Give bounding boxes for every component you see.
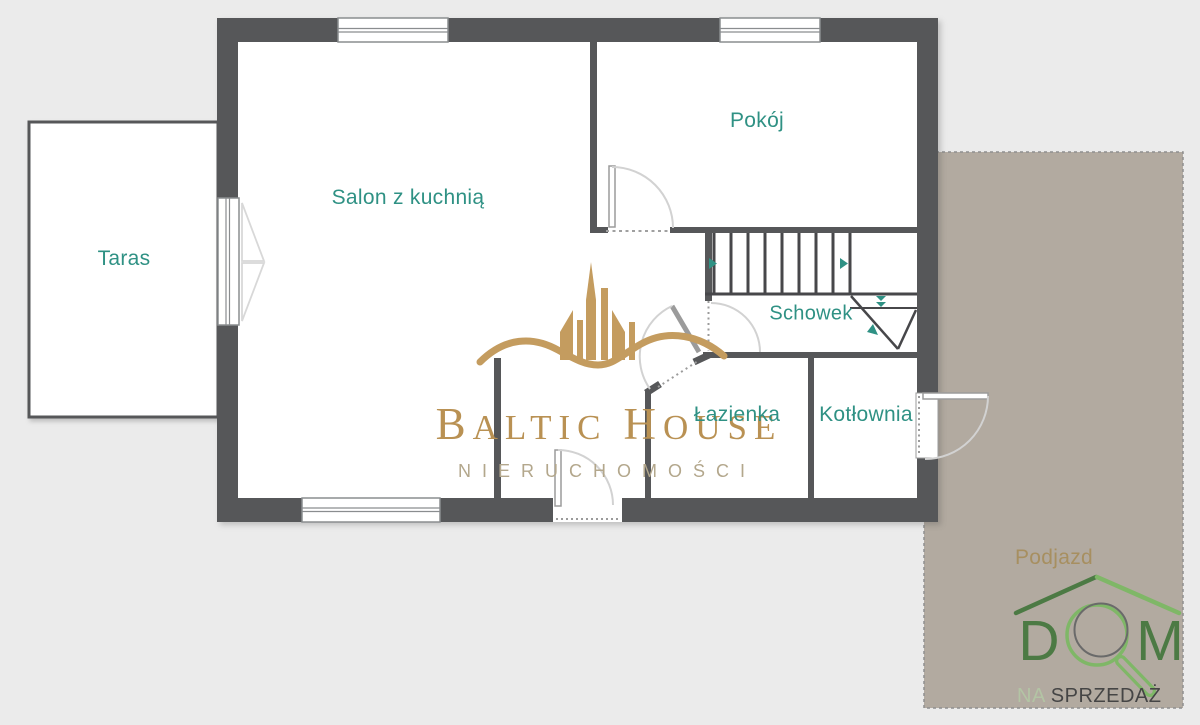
watermark-word1-rest: ALTIC (473, 408, 608, 447)
floor-plan-page: BALTICHOUSE NIERUCHOMOŚCI Taras Salon z … (0, 0, 1200, 725)
logo-letter-m: M (1136, 608, 1183, 674)
room-label-kotlownia: Kotłownia (819, 403, 913, 427)
watermark-word2-initial: H (623, 399, 663, 449)
room-label-schowek: Schowek (769, 303, 852, 326)
watermark-subtitle: NIERUCHOMOŚCI (458, 461, 756, 482)
window-top-right (720, 18, 820, 42)
watermark-word1-initial: B (436, 399, 473, 449)
logo-subtext: NASPRZEDAŻ (1017, 685, 1161, 708)
door-leaf (609, 166, 615, 227)
window-top-left (338, 18, 448, 42)
logo-subtext-na: NA (1017, 685, 1046, 707)
logo-subtext-sprzedaz: SPRZEDAŻ (1051, 685, 1162, 707)
room-label-lazienka: Łazienka (694, 403, 780, 427)
door-leaf (923, 393, 988, 399)
room-label-pokoj: Pokój (730, 109, 784, 133)
room-label-salon: Salon z kuchnią (332, 186, 485, 210)
room-label-podjazd: Podjazd (1015, 546, 1093, 570)
logo-letter-d: D (1018, 608, 1059, 674)
window-bottom (302, 498, 440, 522)
room-label-taras: Taras (98, 247, 151, 271)
